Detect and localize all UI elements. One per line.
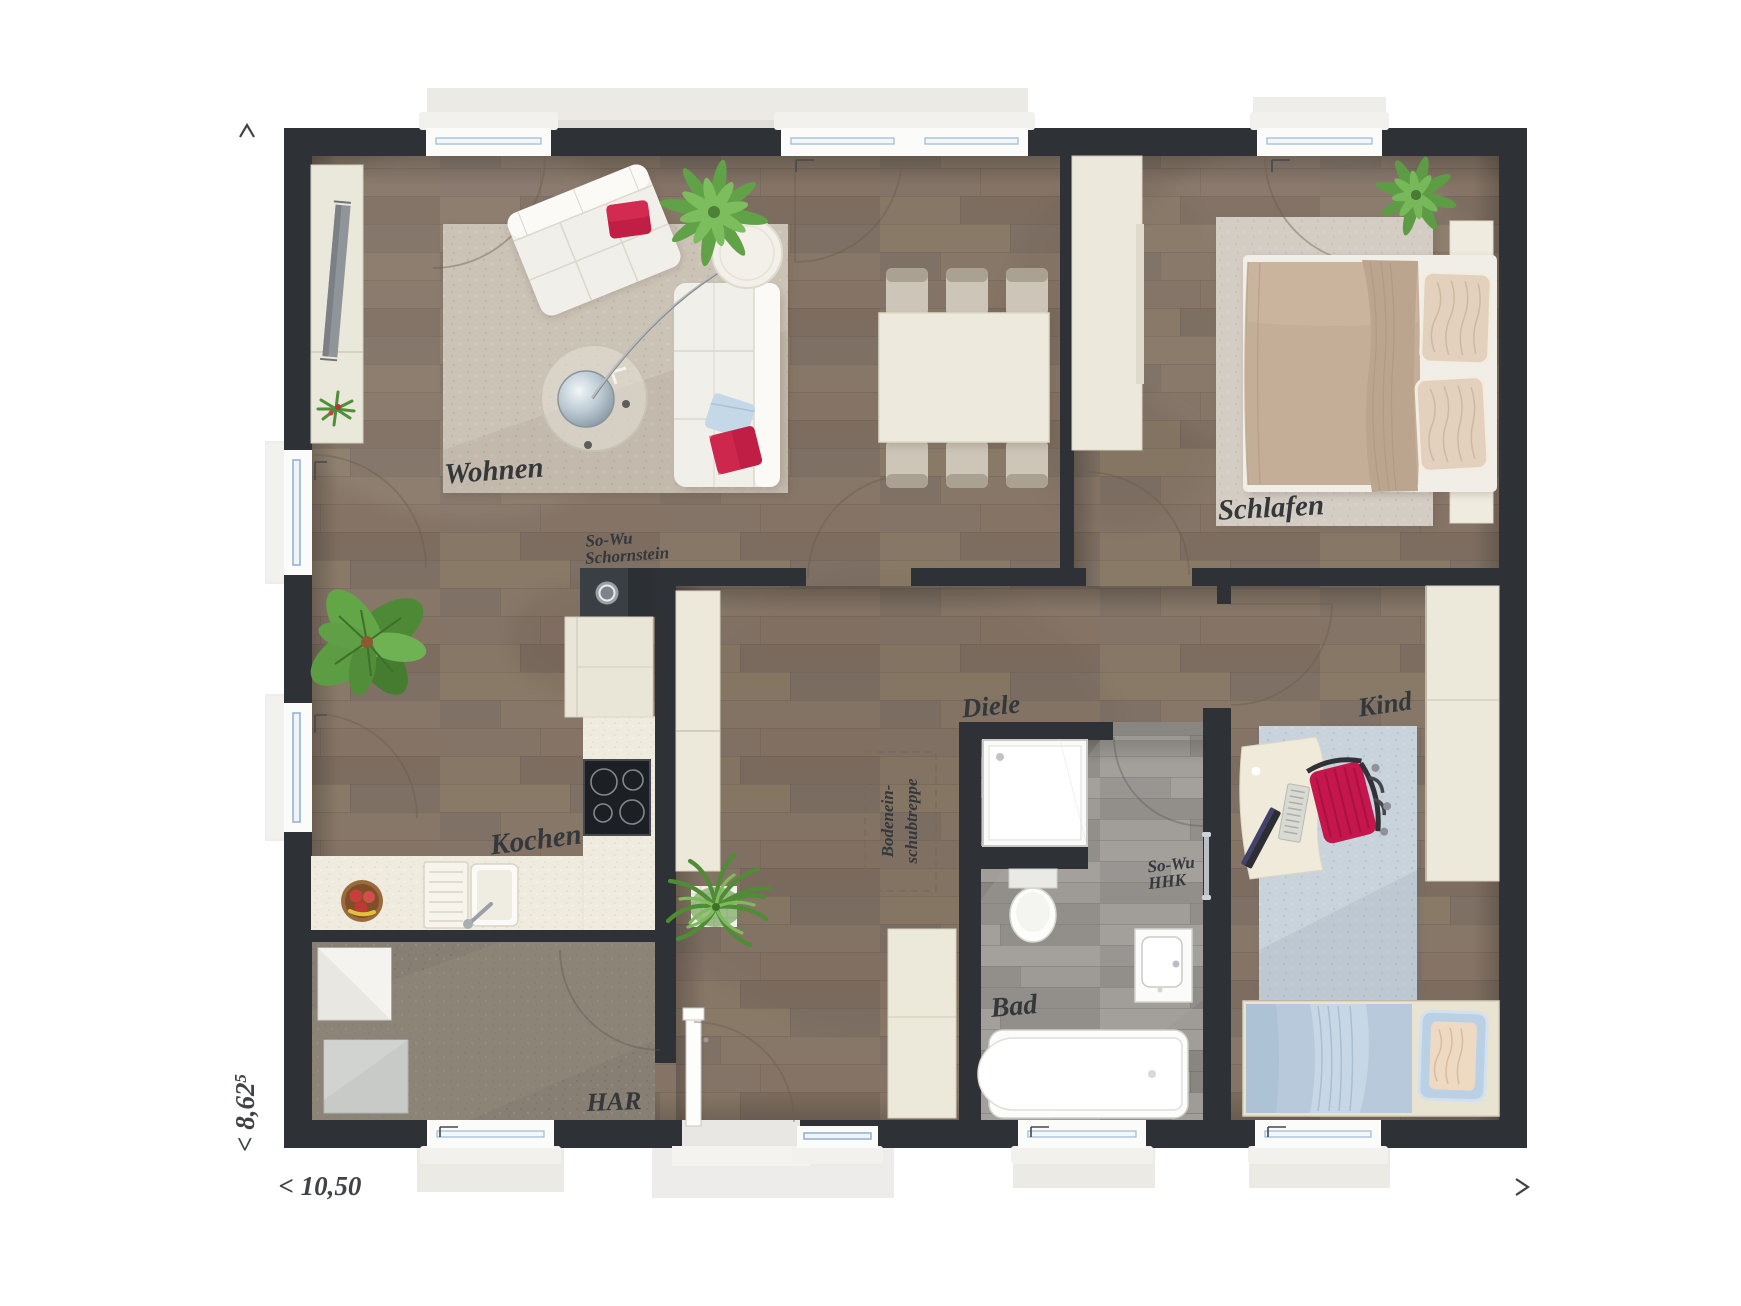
svg-text:Bad: Bad [988, 989, 1039, 1024]
svg-text:< 8,625: < 8,625 [230, 1074, 260, 1152]
svg-text:HAR: HAR [585, 1086, 642, 1117]
svg-text:Schlafen: Schlafen [1217, 489, 1325, 527]
svg-text:schubtreppe: schubtreppe [902, 778, 921, 864]
svg-text:Diele: Diele [959, 689, 1021, 724]
svg-text:< 10,50: < 10,50 [279, 1171, 362, 1201]
svg-text:Bodenein-: Bodenein- [878, 784, 897, 858]
